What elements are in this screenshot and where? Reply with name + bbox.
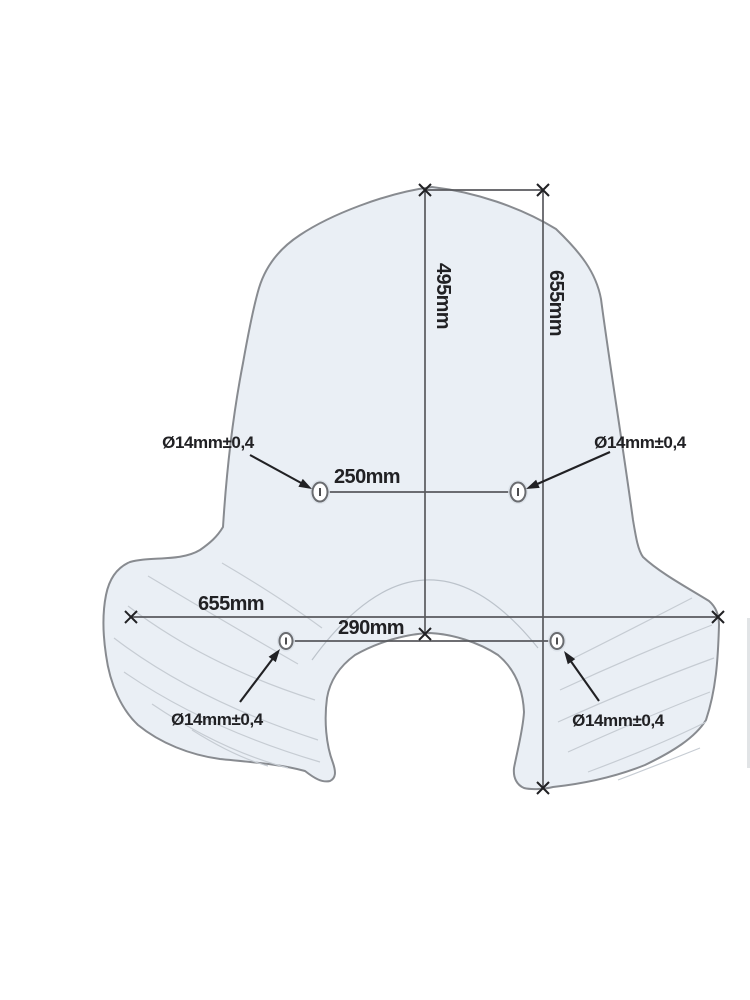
inner-height-label: 495mm (432, 263, 454, 329)
upper-right-hole-label: Ø14mm±0,4 (594, 433, 687, 452)
upper-left-hole-label: Ø14mm±0,4 (162, 433, 255, 452)
total-width-label: 655mm (198, 593, 264, 615)
total-height-label: 655mm (545, 270, 567, 336)
diagram-canvas: 495mm 655mm 250mm 655mm 290mm Ø14mm±0,4 … (0, 0, 750, 1000)
upper-hole-spacing-label: 250mm (334, 466, 400, 488)
upper-right-hole (508, 480, 528, 504)
lower-hole-spacing-label: 290mm (338, 617, 404, 639)
lower-right-hole-label: Ø14mm±0,4 (572, 711, 665, 730)
lower-left-hole-label: Ø14mm±0,4 (171, 710, 264, 729)
lower-left-hole (277, 631, 295, 652)
upper-left-hole (310, 480, 330, 504)
windscreen-outline (103, 187, 719, 789)
lower-right-hole (548, 631, 566, 652)
windscreen-dimension-drawing: 495mm 655mm 250mm 655mm 290mm Ø14mm±0,4 … (0, 0, 750, 1000)
